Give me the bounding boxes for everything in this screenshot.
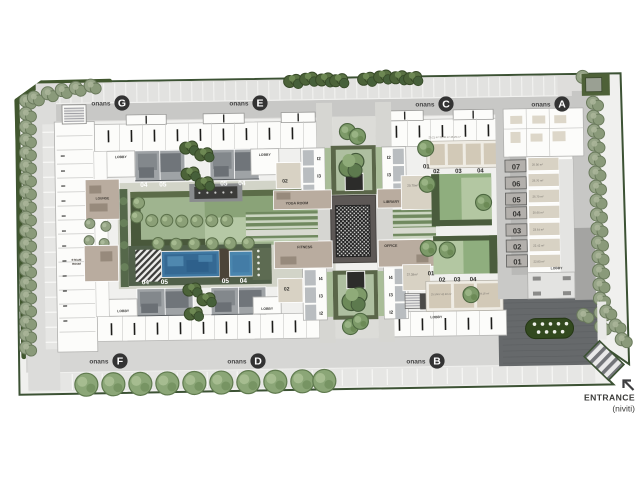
svg-text:onans: onans bbox=[91, 101, 111, 108]
svg-text:FITNESS: FITNESS bbox=[297, 245, 313, 249]
svg-text:B: B bbox=[433, 356, 441, 368]
svg-text:(niviti): (niviti) bbox=[612, 404, 635, 414]
svg-text:I4: I4 bbox=[319, 276, 323, 281]
svg-text:07: 07 bbox=[512, 162, 520, 171]
svg-text:04: 04 bbox=[470, 277, 477, 283]
svg-text:G: G bbox=[118, 98, 126, 110]
svg-text:onans: onans bbox=[229, 101, 249, 108]
svg-text:onans: onans bbox=[415, 102, 435, 109]
svg-text:64.18 m²: 64.18 m² bbox=[479, 291, 489, 295]
svg-text:LOBBY: LOBBY bbox=[259, 153, 272, 157]
svg-text:F: F bbox=[117, 356, 124, 368]
svg-text:06: 06 bbox=[512, 179, 520, 188]
svg-text:ROOM: ROOM bbox=[72, 262, 81, 266]
svg-text:I2: I2 bbox=[319, 311, 323, 316]
svg-text:25.70 m²: 25.70 m² bbox=[532, 194, 543, 198]
svg-text:05: 05 bbox=[161, 279, 169, 286]
svg-text:onans: onans bbox=[531, 102, 551, 109]
svg-text:onans: onans bbox=[406, 359, 426, 366]
svg-text:C: C bbox=[442, 99, 450, 111]
svg-text:LOBBY: LOBBY bbox=[430, 315, 443, 319]
svg-text:05: 05 bbox=[222, 278, 230, 285]
svg-text:02: 02 bbox=[513, 242, 521, 251]
svg-text:I3: I3 bbox=[317, 173, 321, 178]
svg-text:onans: onans bbox=[89, 359, 109, 366]
svg-text:04: 04 bbox=[512, 209, 521, 218]
svg-text:E: E bbox=[256, 98, 263, 110]
svg-text:01: 01 bbox=[428, 271, 435, 277]
svg-text:LOUNGE: LOUNGE bbox=[96, 196, 110, 200]
svg-text:YOGA ROOM: YOGA ROOM bbox=[286, 201, 309, 205]
svg-text:01: 01 bbox=[513, 257, 521, 266]
svg-text:LOBBY: LOBBY bbox=[117, 309, 130, 313]
svg-text:23.54 m²: 23.54 m² bbox=[533, 227, 544, 231]
svg-text:onans: onans bbox=[227, 359, 247, 366]
svg-text:25.36 m²: 25.36 m² bbox=[532, 162, 543, 166]
svg-text:OFFICE: OFFICE bbox=[384, 244, 398, 248]
svg-text:I3: I3 bbox=[389, 292, 393, 297]
svg-text:02: 02 bbox=[284, 286, 290, 292]
svg-text:LOBBY: LOBBY bbox=[261, 307, 274, 311]
svg-text:04: 04 bbox=[140, 182, 148, 189]
svg-text:01: 01 bbox=[423, 164, 430, 170]
svg-text:D: D bbox=[254, 356, 262, 368]
svg-text:I2: I2 bbox=[317, 156, 321, 161]
svg-text:25.59m² 42.22 m²: 25.59m² 42.22 m² bbox=[431, 292, 452, 296]
svg-text:04: 04 bbox=[142, 279, 150, 286]
svg-text:02: 02 bbox=[282, 178, 288, 184]
svg-text:04: 04 bbox=[240, 278, 248, 285]
svg-text:05: 05 bbox=[512, 195, 520, 204]
svg-text:37.39m²: 37.39m² bbox=[407, 272, 418, 276]
svg-text:ENTRANCE: ENTRANCE bbox=[584, 393, 635, 403]
svg-text:03: 03 bbox=[454, 277, 461, 283]
svg-text:05: 05 bbox=[220, 180, 228, 187]
svg-text:04: 04 bbox=[238, 180, 246, 187]
svg-text:25.70 m²: 25.70 m² bbox=[532, 178, 543, 182]
svg-text:22.83 m²: 22.83 m² bbox=[533, 259, 544, 263]
svg-text:I2: I2 bbox=[387, 155, 391, 160]
svg-text:05: 05 bbox=[159, 181, 167, 188]
svg-text:02: 02 bbox=[439, 278, 446, 284]
svg-text:LIBRARY: LIBRARY bbox=[384, 200, 401, 204]
svg-text:03: 03 bbox=[513, 226, 521, 235]
svg-text:LOBBY: LOBBY bbox=[551, 266, 564, 270]
svg-text:I4: I4 bbox=[389, 275, 393, 280]
svg-text:25.65 m²: 25.65 m² bbox=[533, 210, 544, 214]
svg-text:25.21 m² 38.49 m² 23.29 m²: 25.21 m² 38.49 m² 23.29 m² bbox=[428, 135, 460, 140]
svg-text:I3: I3 bbox=[319, 293, 323, 298]
svg-text:A: A bbox=[558, 99, 566, 111]
svg-text:I2: I2 bbox=[389, 310, 393, 315]
svg-text:20.70m²: 20.70m² bbox=[407, 183, 418, 187]
svg-text:I3: I3 bbox=[387, 172, 391, 177]
svg-text:22.42 m²: 22.42 m² bbox=[533, 243, 544, 247]
svg-text:LOBBY: LOBBY bbox=[115, 155, 128, 159]
